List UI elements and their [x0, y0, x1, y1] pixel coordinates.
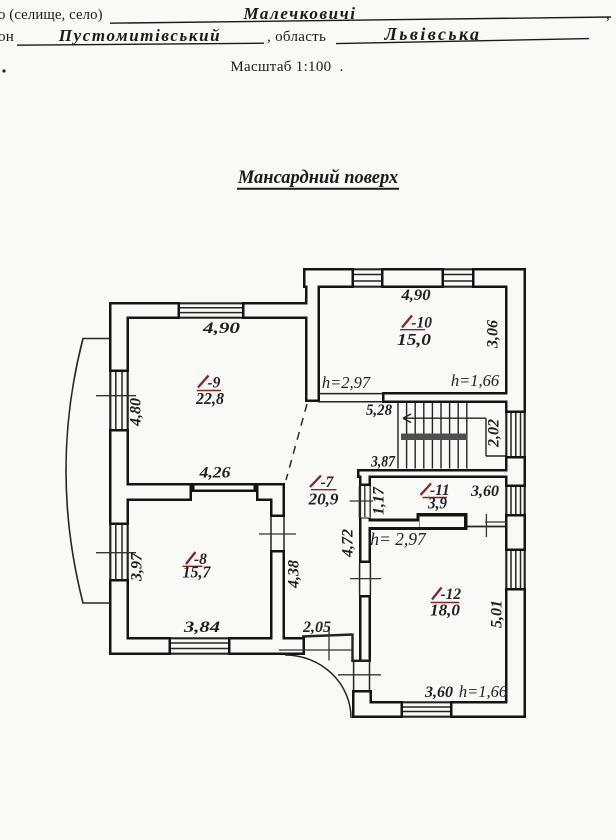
- svg-text:18,0: 18,0: [430, 601, 460, 620]
- svg-text:3,60: 3,60: [424, 684, 453, 701]
- svg-text:3,87: 3,87: [370, 454, 396, 471]
- svg-text:-10: -10: [411, 315, 432, 332]
- svg-text:4,90: 4,90: [202, 320, 240, 337]
- svg-text:3,84: 3,84: [183, 619, 220, 636]
- svg-text:Пустомитівський: Пустомитівський: [58, 26, 221, 45]
- svg-text:1,17: 1,17: [371, 486, 388, 515]
- svg-text:3,9: 3,9: [427, 494, 447, 513]
- svg-text:,: ,: [606, 7, 610, 23]
- svg-text:5,01: 5,01: [489, 600, 506, 628]
- svg-text:20,9: 20,9: [307, 490, 338, 509]
- svg-text:3,06: 3,06: [485, 320, 502, 349]
- svg-text:3,97: 3,97: [129, 552, 146, 582]
- svg-text:22,8: 22,8: [195, 389, 224, 408]
- svg-text:2,02: 2,02: [486, 419, 503, 448]
- svg-text:15,0: 15,0: [397, 330, 431, 349]
- svg-text:4,72: 4,72: [340, 529, 357, 558]
- svg-text:15,7: 15,7: [183, 563, 212, 582]
- svg-text:h= 2,97: h= 2,97: [370, 529, 427, 549]
- svg-text:4,38: 4,38: [286, 560, 303, 589]
- svg-text:, область: , область: [267, 29, 326, 45]
- svg-text:4,80: 4,80: [128, 398, 145, 427]
- svg-text:h=1,66: h=1,66: [459, 682, 508, 701]
- svg-text:Малечковичі: Малечковичі: [242, 4, 356, 23]
- svg-text:3,60: 3,60: [470, 483, 499, 500]
- svg-text:4,90: 4,90: [400, 287, 430, 304]
- svg-text:Львівська: Львівська: [384, 24, 482, 44]
- svg-text:h=2,97: h=2,97: [322, 373, 371, 392]
- svg-text:4,26: 4,26: [198, 465, 230, 482]
- svg-text:h=1,66: h=1,66: [451, 371, 500, 390]
- svg-text:о (селище, село): о (селище, село): [0, 7, 103, 23]
- svg-text:5,28: 5,28: [366, 402, 392, 419]
- svg-text:Мансардний поверх: Мансардний поверх: [237, 168, 398, 188]
- svg-text:он: он: [0, 29, 14, 45]
- svg-text:Масштаб 1:100 .: Масштаб 1:100 .: [230, 59, 343, 75]
- svg-text:-7: -7: [321, 474, 335, 491]
- svg-text:2,05: 2,05: [302, 619, 331, 636]
